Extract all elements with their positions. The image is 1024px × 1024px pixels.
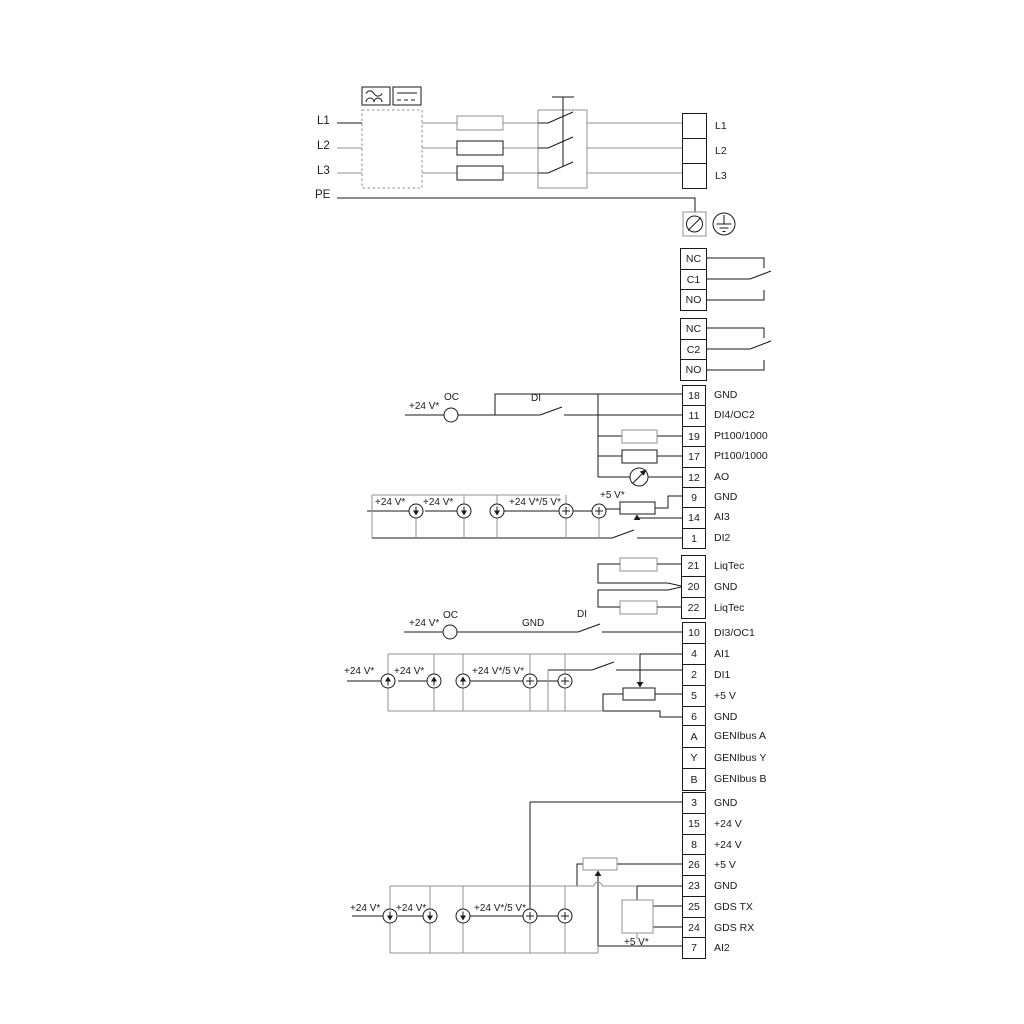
terminal-cell: 11 xyxy=(682,405,706,427)
terminal-cell: C1 xyxy=(680,269,707,290)
terminal-label: +24 V xyxy=(714,813,742,834)
annotation-ai3-24v5: +24 V*/5 V* xyxy=(509,497,561,508)
terminal-cell: 22 xyxy=(681,597,706,619)
wiper-arrow-ai3 xyxy=(634,515,641,521)
terminal-label: GND xyxy=(714,875,737,896)
voltage-source-icon xyxy=(558,909,572,923)
terminal-cell: 10 xyxy=(682,622,706,644)
terminal-label: +5 V xyxy=(714,685,736,706)
supply-wiring xyxy=(337,87,735,236)
terminal-number: NO xyxy=(686,364,702,376)
terminal-number: B xyxy=(690,774,697,786)
terminal-number: 5 xyxy=(691,690,697,702)
annotation-in-l2: L2 xyxy=(317,141,330,152)
terminal-cell: B xyxy=(682,768,706,791)
terminal-label: +5 V xyxy=(714,854,736,875)
terminal-number: 26 xyxy=(688,859,700,871)
open-collector-icon xyxy=(444,408,458,422)
terminal-number: NO xyxy=(686,294,702,306)
terminal-cell: A xyxy=(682,725,706,748)
terminal-number: 9 xyxy=(691,492,697,504)
terminal-label: GDS TX xyxy=(714,896,753,917)
analog-output-meter-icon xyxy=(630,468,648,486)
terminal-cell: 15 xyxy=(682,813,706,835)
rcd-ac-pulse-icon xyxy=(362,87,390,105)
terminal-cell: 7 xyxy=(682,937,706,959)
potentiometer-ai1 xyxy=(623,688,655,700)
liqtec-sensor-21 xyxy=(620,558,657,571)
terminal-cell: 18 xyxy=(682,385,706,406)
terminal-label: GENIbus A xyxy=(714,725,766,747)
io-bottom-wiring xyxy=(352,802,682,953)
liqtec-wiring xyxy=(598,558,682,614)
annotation-in-pe: PE xyxy=(315,190,330,201)
terminal-number: C2 xyxy=(687,344,700,356)
terminal-number: 4 xyxy=(691,648,697,660)
liqtec-sensor-22 xyxy=(620,601,657,614)
terminal-cell: 14 xyxy=(682,507,706,529)
terminal-label: AI2 xyxy=(714,937,730,958)
io-top-wiring xyxy=(367,394,682,538)
terminal-number: 24 xyxy=(688,922,700,934)
rcd-dc-icon xyxy=(393,87,421,105)
terminal-label: GND xyxy=(714,792,737,813)
terminal-label: Pt100/1000 xyxy=(714,446,768,466)
terminal-number: 21 xyxy=(688,560,700,572)
annotation-ai2-24v-1: +24 V* xyxy=(350,903,380,914)
annotation-di4-di: DI xyxy=(531,393,541,404)
current-source-icon xyxy=(490,504,504,518)
terminal-number: 15 xyxy=(688,818,700,830)
pe-terminal xyxy=(683,212,706,236)
voltage-source-icon xyxy=(523,674,537,688)
terminal-label: GND xyxy=(714,487,737,507)
terminal-number: C1 xyxy=(687,274,700,286)
terminal-label: DI3/OC1 xyxy=(714,622,755,643)
fuse-l3 xyxy=(457,166,503,180)
annotation-in-l1: L1 xyxy=(317,116,330,127)
terminal-label: L2 xyxy=(715,138,727,163)
terminal-number: 1 xyxy=(691,533,697,545)
terminal-label: GENIbus Y xyxy=(714,747,766,769)
annotation-ai3-24v-1: +24 V* xyxy=(375,497,405,508)
voltage-source-icon xyxy=(558,674,572,688)
terminal-number: 2 xyxy=(691,669,697,681)
terminal-number: 20 xyxy=(688,581,700,593)
terminal-number: 22 xyxy=(688,602,700,614)
terminal-cell: 9 xyxy=(682,487,706,508)
current-source-icon xyxy=(383,909,397,923)
terminal-label: GDS RX xyxy=(714,917,754,938)
terminal-label: GND xyxy=(714,706,737,727)
terminal-number: Y xyxy=(690,752,697,764)
current-source-icon xyxy=(457,504,471,518)
terminal-label: GND xyxy=(714,385,737,405)
terminal-number: NC xyxy=(686,253,701,265)
terminal-number: 25 xyxy=(688,901,700,913)
terminal-label: L1 xyxy=(715,113,727,138)
pt100-resistor-17 xyxy=(622,450,657,463)
terminal-label: LiqTec xyxy=(714,555,744,576)
terminal-cell: 26 xyxy=(682,854,706,876)
terminal-label: DI4/OC2 xyxy=(714,405,755,425)
wiring-diagram: L1L2L3NCC1NONCC2NO18GND11DI4/OC219Pt100/… xyxy=(0,0,1024,1024)
current-source-icon xyxy=(456,674,470,688)
terminal-number: 8 xyxy=(691,839,697,851)
annotation-oc1-di: DI xyxy=(577,609,587,620)
annotation-oc1-oc: OC xyxy=(443,610,458,621)
terminal-cell: 5 xyxy=(682,685,706,707)
annotation-ai2-5v: +5 V* xyxy=(624,937,649,948)
terminal-cell: NO xyxy=(680,289,707,311)
terminal-cell: 4 xyxy=(682,643,706,665)
pt100-resistor-19 xyxy=(622,430,657,443)
terminal-cell xyxy=(682,138,707,164)
annotation-ai1-24v-2: +24 V* xyxy=(394,666,424,677)
rcd-filter-box xyxy=(362,110,422,188)
terminal-cell: Y xyxy=(682,747,706,769)
terminal-label: AI3 xyxy=(714,507,730,527)
terminal-cell: 2 xyxy=(682,664,706,686)
voltage-source-icon xyxy=(559,504,573,518)
wiper-arrow-ai1 xyxy=(637,682,644,688)
terminal-cell xyxy=(682,113,707,139)
terminal-cell: 3 xyxy=(682,792,706,814)
annotation-ai1-24v5: +24 V*/5 V* xyxy=(472,666,524,677)
terminal-number: NC xyxy=(686,323,701,335)
terminal-cell: 23 xyxy=(682,875,706,897)
annotation-ai2-24v5: +24 V*/5 V* xyxy=(474,903,526,914)
terminal-cell: NC xyxy=(680,248,707,270)
annotation-oc1-24v: +24 V* xyxy=(409,618,439,629)
current-source-icon xyxy=(409,504,423,518)
wiper-arrow-ai2 xyxy=(595,871,602,877)
terminal-cell: 12 xyxy=(682,467,706,488)
terminal-cell: 1 xyxy=(682,528,706,549)
main-switch xyxy=(538,97,587,188)
terminal-number: 7 xyxy=(691,942,697,954)
annotation-ai3-24v-2: +24 V* xyxy=(423,497,453,508)
earth-ground-icon xyxy=(713,213,735,235)
current-source-icon xyxy=(381,674,395,688)
terminal-cell: 17 xyxy=(682,446,706,468)
gds-sensor-box xyxy=(622,900,653,933)
terminal-number: 11 xyxy=(689,410,700,422)
terminal-cell: 20 xyxy=(681,576,706,598)
fuse-l2 xyxy=(457,141,503,155)
terminal-cell: NC xyxy=(680,318,707,340)
terminal-label: DI1 xyxy=(714,664,730,685)
terminal-number: 19 xyxy=(688,431,700,443)
terminal-cell: 25 xyxy=(682,896,706,918)
terminal-label: +24 V xyxy=(714,834,742,855)
annotation-ai2-24v-2: +24 V* xyxy=(396,903,426,914)
terminal-label: AO xyxy=(714,467,729,487)
terminal-cell: 8 xyxy=(682,834,706,855)
terminal-cell: C2 xyxy=(680,339,707,360)
terminal-cell: 21 xyxy=(681,555,706,577)
terminal-label: L3 xyxy=(715,163,727,188)
annotation-oc2-oc: OC xyxy=(444,392,459,403)
terminal-label: DI2 xyxy=(714,528,730,548)
terminal-cell xyxy=(682,163,707,189)
terminal-number: 12 xyxy=(688,472,700,484)
current-source-icon xyxy=(427,674,441,688)
annotation-oc2-24v: +24 V* xyxy=(409,401,439,412)
voltage-source-icon xyxy=(592,504,606,518)
terminal-cell: 24 xyxy=(682,917,706,938)
terminal-number: 10 xyxy=(688,627,700,639)
terminal-number: 18 xyxy=(688,390,700,402)
relay-contacts xyxy=(707,258,771,370)
terminal-number: 14 xyxy=(688,512,700,524)
terminal-label: AI1 xyxy=(714,643,730,664)
terminal-number: 17 xyxy=(688,451,700,463)
potentiometer-ai3 xyxy=(620,502,655,514)
terminal-number: A xyxy=(690,731,697,743)
terminal-number: 6 xyxy=(691,711,697,723)
terminal-cell: 19 xyxy=(682,426,706,447)
terminal-cell: NO xyxy=(680,359,707,381)
terminal-label: LiqTec xyxy=(714,597,744,618)
diagram-canvas xyxy=(0,0,1024,1024)
annotation-ai3-5v: +5 V* xyxy=(600,490,625,501)
terminal-label: GENIbus B xyxy=(714,768,767,790)
terminal-number: 23 xyxy=(688,880,700,892)
potentiometer-ai2 xyxy=(583,858,617,870)
annotation-oc1-gnd: GND xyxy=(522,618,544,629)
terminal-number: 3 xyxy=(691,797,697,809)
open-collector-icon xyxy=(443,625,457,639)
terminal-label: Pt100/1000 xyxy=(714,426,768,446)
annotation-in-l3: L3 xyxy=(317,166,330,177)
annotation-ai1-24v-1: +24 V* xyxy=(344,666,374,677)
terminal-label: GND xyxy=(714,576,737,597)
fuse-l1 xyxy=(457,116,503,130)
current-source-icon xyxy=(456,909,470,923)
